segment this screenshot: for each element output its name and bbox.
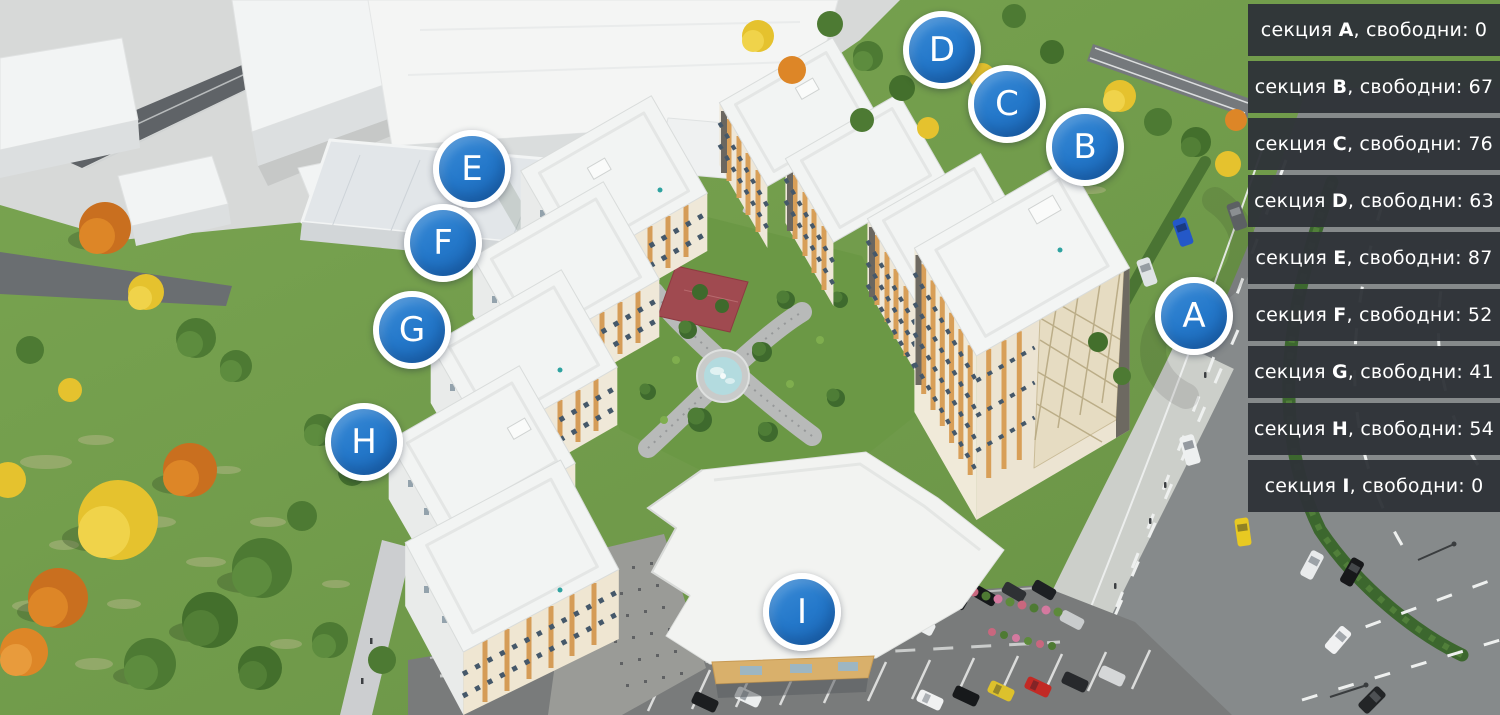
section-label-prefix: секция	[1254, 418, 1332, 440]
section-marker-F[interactable]: F	[404, 204, 482, 282]
section-letter: A	[1339, 19, 1354, 41]
marker-letter: D	[929, 33, 955, 67]
section-letter: D	[1332, 190, 1348, 212]
section-marker-H[interactable]: H	[325, 403, 403, 481]
section-letter: F	[1333, 304, 1346, 326]
section-availability: , свободни: 76	[1347, 133, 1493, 155]
marker-letter: F	[433, 226, 453, 260]
section-availability: , свободни: 54	[1348, 418, 1494, 440]
section-letter: C	[1333, 133, 1347, 155]
section-label-prefix: секция	[1256, 304, 1334, 326]
marker-letter: A	[1182, 299, 1205, 333]
interactive-complex-map: DCBEFGHAI секция A, свободни: 0секция B,…	[0, 0, 1500, 715]
section-availability: , свободни: 0	[1350, 475, 1484, 497]
section-letter: B	[1333, 76, 1348, 98]
section-marker-A[interactable]: A	[1155, 277, 1233, 355]
section-row-C[interactable]: секция C, свободни: 76	[1248, 118, 1500, 170]
marker-letter: H	[351, 425, 377, 459]
sections-panel: секция A, свободни: 0секция B, свободни:…	[1248, 4, 1500, 512]
section-letter: E	[1333, 247, 1346, 269]
section-label-prefix: секция	[1254, 190, 1332, 212]
fountain	[697, 350, 749, 402]
section-label-prefix: секция	[1255, 76, 1333, 98]
section-letter: G	[1332, 361, 1348, 383]
marker-letter: E	[461, 152, 482, 186]
section-marker-E[interactable]: E	[433, 130, 511, 208]
section-marker-B[interactable]: B	[1046, 108, 1124, 186]
section-letter: I	[1342, 475, 1349, 497]
marker-letter: B	[1073, 130, 1096, 164]
marker-letter: C	[995, 87, 1019, 121]
section-row-I[interactable]: секция I, свободни: 0	[1248, 460, 1500, 512]
section-availability: , свободни: 41	[1348, 361, 1494, 383]
marker-letter: I	[797, 595, 807, 629]
section-row-A[interactable]: секция A, свободни: 0	[1248, 4, 1500, 56]
section-marker-I[interactable]: I	[763, 573, 841, 651]
section-label-prefix: секция	[1261, 19, 1339, 41]
section-label-prefix: секция	[1265, 475, 1343, 497]
section-letter: H	[1332, 418, 1348, 440]
section-row-E[interactable]: секция E, свободни: 87	[1248, 232, 1500, 284]
section-availability: , свободни: 52	[1346, 304, 1492, 326]
section-row-F[interactable]: секция F, свободни: 52	[1248, 289, 1500, 341]
section-availability: , свободни: 87	[1346, 247, 1492, 269]
section-row-D[interactable]: секция D, свободни: 63	[1248, 175, 1500, 227]
section-row-G[interactable]: секция G, свободни: 41	[1248, 346, 1500, 398]
section-label-prefix: секция	[1256, 247, 1334, 269]
section-marker-C[interactable]: C	[968, 65, 1046, 143]
section-label-prefix: секция	[1255, 133, 1333, 155]
section-row-B[interactable]: секция B, свободни: 67	[1248, 61, 1500, 113]
section-availability: , свободни: 63	[1348, 190, 1494, 212]
section-marker-D[interactable]: D	[903, 11, 981, 89]
section-label-prefix: секция	[1254, 361, 1332, 383]
section-availability: , свободни: 0	[1353, 19, 1487, 41]
section-availability: , свободни: 67	[1347, 76, 1493, 98]
marker-letter: G	[399, 313, 425, 347]
section-marker-G[interactable]: G	[373, 291, 451, 369]
section-row-H[interactable]: секция H, свободни: 54	[1248, 403, 1500, 455]
